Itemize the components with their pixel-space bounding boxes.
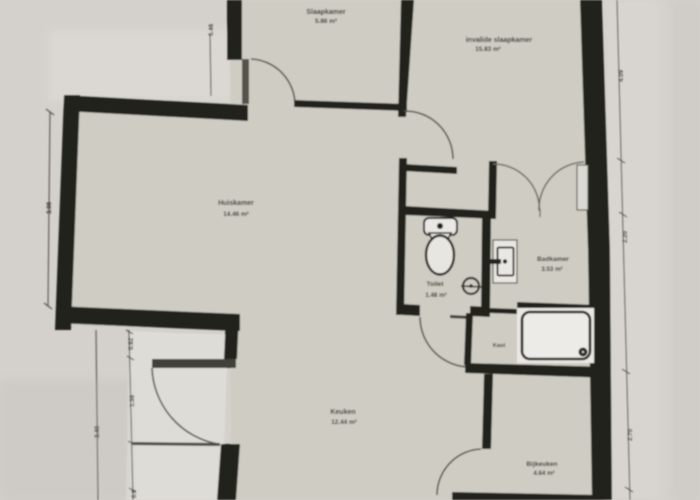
svg-text:15.83 m²: 15.83 m² (475, 46, 501, 53)
svg-text:3.08: 3.08 (46, 201, 53, 214)
svg-text:12.44 m²: 12.44 m² (331, 419, 357, 426)
svg-text:2.70: 2.70 (627, 428, 634, 441)
svg-text:3.53 m²: 3.53 m² (541, 266, 562, 273)
svg-text:5.86 m²: 5.86 m² (315, 18, 337, 25)
svg-text:0.92: 0.92 (128, 337, 135, 350)
svg-text:4.09: 4.09 (618, 69, 625, 82)
svg-text:14.46 m²: 14.46 m² (223, 211, 249, 218)
svg-text:Badkamer: Badkamer (537, 256, 569, 263)
svg-text:Huiskamer: Huiskamer (218, 200, 254, 207)
svg-text:invalide slaapkamer: invalide slaapkamer (466, 37, 533, 44)
svg-text:Slaapkamer: Slaapkamer (306, 9, 346, 16)
svg-text:1.38: 1.38 (129, 394, 136, 407)
svg-text:2.20: 2.20 (622, 230, 629, 243)
svg-text:4.64 m²: 4.64 m² (533, 470, 554, 477)
svg-text:1.48 m²: 1.48 m² (425, 292, 446, 299)
svg-text:0.9: 0.9 (131, 489, 138, 498)
svg-text:Toilet: Toilet (426, 281, 444, 288)
svg-text:Kast: Kast (493, 343, 506, 349)
svg-text:Bijkeuken: Bijkeuken (526, 461, 557, 468)
svg-text:Keuken: Keuken (330, 409, 355, 416)
svg-text:5.46: 5.46 (208, 23, 215, 36)
